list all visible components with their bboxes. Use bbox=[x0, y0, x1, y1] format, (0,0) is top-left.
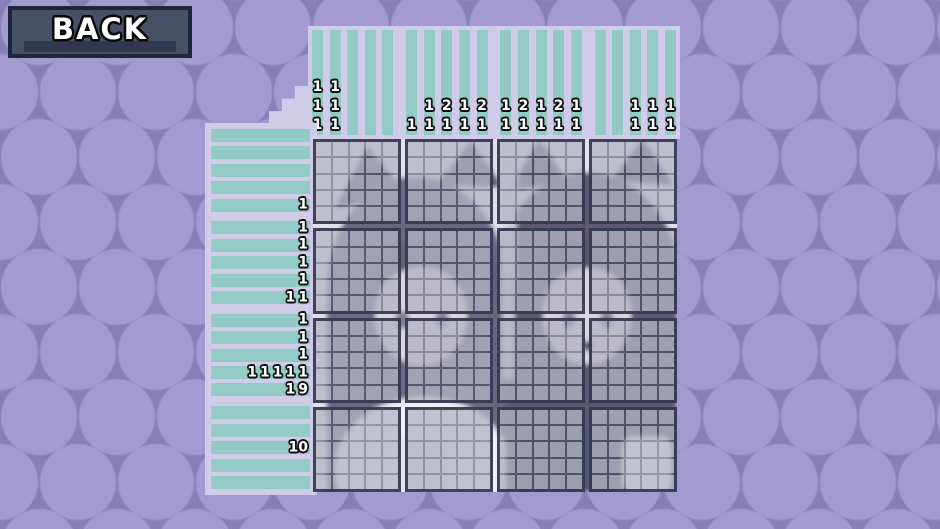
grid-cell[interactable] bbox=[609, 191, 624, 205]
grid-cell[interactable] bbox=[500, 410, 515, 424]
grid-cell[interactable] bbox=[659, 337, 674, 351]
grid-cell[interactable] bbox=[517, 280, 532, 294]
grid-cell[interactable] bbox=[333, 191, 348, 205]
grid-cell[interactable] bbox=[609, 369, 624, 383]
grid-cell[interactable] bbox=[567, 410, 582, 424]
grid-cell[interactable] bbox=[458, 475, 473, 489]
grid-cell[interactable] bbox=[475, 475, 490, 489]
grid-cell[interactable] bbox=[316, 337, 331, 351]
grid-cell[interactable] bbox=[350, 280, 365, 294]
grid-cell[interactable] bbox=[442, 337, 457, 351]
grid-cell[interactable] bbox=[550, 264, 565, 278]
grid-cell[interactable] bbox=[366, 264, 381, 278]
grid-cell[interactable] bbox=[534, 264, 549, 278]
grid-cell[interactable] bbox=[458, 142, 473, 156]
grid-cell[interactable] bbox=[642, 386, 657, 400]
grid-cell[interactable] bbox=[626, 475, 641, 489]
grid-cell[interactable] bbox=[534, 426, 549, 440]
grid-cell[interactable] bbox=[550, 248, 565, 262]
grid-cell[interactable] bbox=[567, 175, 582, 189]
grid-cell[interactable] bbox=[458, 264, 473, 278]
grid-cell[interactable] bbox=[442, 142, 457, 156]
grid-cell[interactable] bbox=[366, 142, 381, 156]
grid-cell[interactable] bbox=[383, 175, 398, 189]
grid-cell[interactable] bbox=[333, 207, 348, 221]
grid-cell[interactable] bbox=[609, 280, 624, 294]
grid-cell[interactable] bbox=[475, 386, 490, 400]
grid-cell[interactable] bbox=[366, 207, 381, 221]
grid-cell[interactable] bbox=[517, 207, 532, 221]
grid-cell[interactable] bbox=[517, 386, 532, 400]
back-button[interactable]: BACK bbox=[8, 6, 192, 58]
grid-cell[interactable] bbox=[350, 337, 365, 351]
grid-cell[interactable] bbox=[408, 191, 423, 205]
grid-cell[interactable] bbox=[458, 459, 473, 473]
grid-cell[interactable] bbox=[366, 337, 381, 351]
grid-cell[interactable] bbox=[425, 142, 440, 156]
grid-cell[interactable] bbox=[408, 353, 423, 367]
grid-cell[interactable] bbox=[442, 442, 457, 456]
grid-cell[interactable] bbox=[592, 175, 607, 189]
grid-cell[interactable] bbox=[442, 158, 457, 172]
grid-cell[interactable] bbox=[383, 280, 398, 294]
grid-cell[interactable] bbox=[442, 475, 457, 489]
grid-cell[interactable] bbox=[517, 410, 532, 424]
grid-cell[interactable] bbox=[383, 426, 398, 440]
grid-cell[interactable] bbox=[316, 191, 331, 205]
grid-cell[interactable] bbox=[567, 353, 582, 367]
grid-cell[interactable] bbox=[592, 475, 607, 489]
grid-cell[interactable] bbox=[659, 191, 674, 205]
grid-cell[interactable] bbox=[350, 475, 365, 489]
grid-cell[interactable] bbox=[408, 475, 423, 489]
grid-cell[interactable] bbox=[659, 142, 674, 156]
grid-cell[interactable] bbox=[567, 231, 582, 245]
grid-cell[interactable] bbox=[408, 369, 423, 383]
grid-cell[interactable] bbox=[333, 158, 348, 172]
grid-cell[interactable] bbox=[383, 459, 398, 473]
grid-cell[interactable] bbox=[333, 231, 348, 245]
grid-cell[interactable] bbox=[333, 264, 348, 278]
grid-cell[interactable] bbox=[592, 321, 607, 335]
grid-cell[interactable] bbox=[500, 231, 515, 245]
grid-cell[interactable] bbox=[550, 158, 565, 172]
grid-cell[interactable] bbox=[550, 442, 565, 456]
grid-cell[interactable] bbox=[500, 296, 515, 310]
grid-cell[interactable] bbox=[626, 175, 641, 189]
grid-cell[interactable] bbox=[383, 410, 398, 424]
grid-cell[interactable] bbox=[592, 459, 607, 473]
grid-cell[interactable] bbox=[659, 386, 674, 400]
grid-cell[interactable] bbox=[366, 280, 381, 294]
grid-cell[interactable] bbox=[659, 442, 674, 456]
grid-cell[interactable] bbox=[425, 191, 440, 205]
grid-cell[interactable] bbox=[458, 191, 473, 205]
grid-cell[interactable] bbox=[442, 248, 457, 262]
grid-cell[interactable] bbox=[442, 426, 457, 440]
grid-cell[interactable] bbox=[366, 426, 381, 440]
grid-cell[interactable] bbox=[425, 321, 440, 335]
grid-cell[interactable] bbox=[316, 207, 331, 221]
grid-cell[interactable] bbox=[366, 369, 381, 383]
grid-cell[interactable] bbox=[500, 264, 515, 278]
grid-cell[interactable] bbox=[475, 369, 490, 383]
grid-cell[interactable] bbox=[550, 459, 565, 473]
grid-cell[interactable] bbox=[475, 142, 490, 156]
grid-cell[interactable] bbox=[333, 369, 348, 383]
grid-cell[interactable] bbox=[442, 410, 457, 424]
grid-cell[interactable] bbox=[626, 264, 641, 278]
grid-cell[interactable] bbox=[458, 296, 473, 310]
grid-cell[interactable] bbox=[408, 175, 423, 189]
grid-cell[interactable] bbox=[609, 158, 624, 172]
grid-cell[interactable] bbox=[534, 158, 549, 172]
grid-cell[interactable] bbox=[609, 264, 624, 278]
grid-cell[interactable] bbox=[316, 369, 331, 383]
grid-cell[interactable] bbox=[592, 158, 607, 172]
grid-cell[interactable] bbox=[425, 426, 440, 440]
grid-cell[interactable] bbox=[500, 337, 515, 351]
grid-cell[interactable] bbox=[567, 426, 582, 440]
grid-cell[interactable] bbox=[626, 442, 641, 456]
grid-cell[interactable] bbox=[642, 337, 657, 351]
grid-cell[interactable] bbox=[316, 296, 331, 310]
grid-cell[interactable] bbox=[550, 475, 565, 489]
grid-cell[interactable] bbox=[642, 207, 657, 221]
grid-cell[interactable] bbox=[550, 142, 565, 156]
grid-cell[interactable] bbox=[534, 280, 549, 294]
grid-cell[interactable] bbox=[383, 207, 398, 221]
grid-cell[interactable] bbox=[425, 459, 440, 473]
grid-cell[interactable] bbox=[366, 475, 381, 489]
grid-cell[interactable] bbox=[350, 175, 365, 189]
grid-cell[interactable] bbox=[500, 475, 515, 489]
grid-cell[interactable] bbox=[316, 426, 331, 440]
grid-cell[interactable] bbox=[592, 410, 607, 424]
grid-cell[interactable] bbox=[475, 231, 490, 245]
grid-cell[interactable] bbox=[626, 158, 641, 172]
grid-cell[interactable] bbox=[567, 207, 582, 221]
grid-cell[interactable] bbox=[567, 191, 582, 205]
grid-cell[interactable] bbox=[609, 248, 624, 262]
grid-cell[interactable] bbox=[642, 280, 657, 294]
grid-cell[interactable] bbox=[550, 207, 565, 221]
grid-cell[interactable] bbox=[408, 231, 423, 245]
grid-cell[interactable] bbox=[408, 158, 423, 172]
grid-cell[interactable] bbox=[442, 321, 457, 335]
grid-cell[interactable] bbox=[425, 353, 440, 367]
grid-cell[interactable] bbox=[534, 459, 549, 473]
grid-cell[interactable] bbox=[366, 459, 381, 473]
grid-cell[interactable] bbox=[517, 337, 532, 351]
grid-cell[interactable] bbox=[534, 248, 549, 262]
grid-cell[interactable] bbox=[333, 175, 348, 189]
grid-cell[interactable] bbox=[659, 369, 674, 383]
grid-cell[interactable] bbox=[626, 280, 641, 294]
grid-cell[interactable] bbox=[425, 475, 440, 489]
grid-cell[interactable] bbox=[333, 142, 348, 156]
grid-cell[interactable] bbox=[350, 426, 365, 440]
grid-cell[interactable] bbox=[383, 442, 398, 456]
grid-cell[interactable] bbox=[517, 321, 532, 335]
grid-cell[interactable] bbox=[475, 158, 490, 172]
grid-cell[interactable] bbox=[425, 207, 440, 221]
grid-cell[interactable] bbox=[425, 296, 440, 310]
grid-cell[interactable] bbox=[534, 321, 549, 335]
grid-cell[interactable] bbox=[567, 475, 582, 489]
grid-cell[interactable] bbox=[442, 175, 457, 189]
grid-cell[interactable] bbox=[458, 158, 473, 172]
grid-cell[interactable] bbox=[626, 231, 641, 245]
grid-cell[interactable] bbox=[408, 442, 423, 456]
grid-cell[interactable] bbox=[550, 353, 565, 367]
grid-cell[interactable] bbox=[567, 386, 582, 400]
grid-cell[interactable] bbox=[609, 175, 624, 189]
grid-cell[interactable] bbox=[534, 231, 549, 245]
grid-cell[interactable] bbox=[626, 410, 641, 424]
grid-cell[interactable] bbox=[366, 248, 381, 262]
grid-cell[interactable] bbox=[366, 158, 381, 172]
grid-cell[interactable] bbox=[333, 426, 348, 440]
grid-cell[interactable] bbox=[316, 321, 331, 335]
grid-cell[interactable] bbox=[642, 442, 657, 456]
grid-cell[interactable] bbox=[316, 353, 331, 367]
grid-cell[interactable] bbox=[642, 231, 657, 245]
grid-cell[interactable] bbox=[500, 353, 515, 367]
grid-cell[interactable] bbox=[333, 337, 348, 351]
grid-cell[interactable] bbox=[567, 248, 582, 262]
grid-cell[interactable] bbox=[316, 442, 331, 456]
grid-cell[interactable] bbox=[592, 442, 607, 456]
grid-cell[interactable] bbox=[475, 207, 490, 221]
grid-cell[interactable] bbox=[350, 353, 365, 367]
grid-cell[interactable] bbox=[408, 410, 423, 424]
grid-cell[interactable] bbox=[592, 386, 607, 400]
grid-cell[interactable] bbox=[316, 475, 331, 489]
grid-cell[interactable] bbox=[475, 191, 490, 205]
grid-cell[interactable] bbox=[534, 386, 549, 400]
grid-cell[interactable] bbox=[642, 410, 657, 424]
grid-cell[interactable] bbox=[534, 142, 549, 156]
grid-cell[interactable] bbox=[534, 337, 549, 351]
grid-cell[interactable] bbox=[350, 207, 365, 221]
grid-cell[interactable] bbox=[609, 475, 624, 489]
grid-cell[interactable] bbox=[626, 459, 641, 473]
grid-cell[interactable] bbox=[659, 459, 674, 473]
grid-cell[interactable] bbox=[425, 337, 440, 351]
grid-cell[interactable] bbox=[626, 369, 641, 383]
grid-cell[interactable] bbox=[442, 231, 457, 245]
grid-cell[interactable] bbox=[442, 369, 457, 383]
grid-cell[interactable] bbox=[350, 321, 365, 335]
grid-cell[interactable] bbox=[316, 175, 331, 189]
grid-cell[interactable] bbox=[383, 142, 398, 156]
grid-cell[interactable] bbox=[458, 175, 473, 189]
grid-cell[interactable] bbox=[425, 410, 440, 424]
grid-cell[interactable] bbox=[366, 175, 381, 189]
grid-cell[interactable] bbox=[659, 410, 674, 424]
grid-cell[interactable] bbox=[408, 248, 423, 262]
grid-cell[interactable] bbox=[534, 175, 549, 189]
grid-cell[interactable] bbox=[550, 426, 565, 440]
grid-cell[interactable] bbox=[534, 369, 549, 383]
grid-cell[interactable] bbox=[550, 321, 565, 335]
grid-cell[interactable] bbox=[458, 386, 473, 400]
grid-cell[interactable] bbox=[333, 248, 348, 262]
grid-cell[interactable] bbox=[366, 386, 381, 400]
grid-cell[interactable] bbox=[383, 337, 398, 351]
grid-cell[interactable] bbox=[316, 158, 331, 172]
grid-cell[interactable] bbox=[609, 207, 624, 221]
grid-cell[interactable] bbox=[550, 369, 565, 383]
grid-cell[interactable] bbox=[609, 296, 624, 310]
grid-cell[interactable] bbox=[350, 264, 365, 278]
grid-cell[interactable] bbox=[408, 296, 423, 310]
grid-cell[interactable] bbox=[609, 142, 624, 156]
grid-cell[interactable] bbox=[442, 191, 457, 205]
grid-cell[interactable] bbox=[408, 426, 423, 440]
grid-cell[interactable] bbox=[425, 231, 440, 245]
grid-cell[interactable] bbox=[517, 158, 532, 172]
grid-cell[interactable] bbox=[475, 410, 490, 424]
grid-cell[interactable] bbox=[350, 410, 365, 424]
grid-cell[interactable] bbox=[383, 369, 398, 383]
grid-cell[interactable] bbox=[442, 386, 457, 400]
grid-cell[interactable] bbox=[425, 175, 440, 189]
grid-cell[interactable] bbox=[550, 175, 565, 189]
grid-cell[interactable] bbox=[659, 207, 674, 221]
grid-cell[interactable] bbox=[626, 191, 641, 205]
grid-cell[interactable] bbox=[567, 369, 582, 383]
grid-cell[interactable] bbox=[567, 280, 582, 294]
grid-cell[interactable] bbox=[333, 386, 348, 400]
grid-cell[interactable] bbox=[609, 459, 624, 473]
grid-cell[interactable] bbox=[550, 386, 565, 400]
grid-cell[interactable] bbox=[442, 459, 457, 473]
grid-cell[interactable] bbox=[458, 442, 473, 456]
grid-cell[interactable] bbox=[316, 248, 331, 262]
grid-cell[interactable] bbox=[350, 158, 365, 172]
grid-cell[interactable] bbox=[425, 386, 440, 400]
grid-cell[interactable] bbox=[408, 459, 423, 473]
grid-cell[interactable] bbox=[517, 175, 532, 189]
grid-cell[interactable] bbox=[534, 410, 549, 424]
grid-cell[interactable] bbox=[500, 207, 515, 221]
grid-cell[interactable] bbox=[534, 442, 549, 456]
grid-cell[interactable] bbox=[316, 142, 331, 156]
grid-cell[interactable] bbox=[458, 248, 473, 262]
grid-cell[interactable] bbox=[626, 426, 641, 440]
grid-cell[interactable] bbox=[642, 459, 657, 473]
grid-cell[interactable] bbox=[534, 191, 549, 205]
grid-cell[interactable] bbox=[458, 280, 473, 294]
grid-cell[interactable] bbox=[408, 337, 423, 351]
grid-cell[interactable] bbox=[659, 353, 674, 367]
grid-cell[interactable] bbox=[592, 337, 607, 351]
grid-cell[interactable] bbox=[475, 280, 490, 294]
grid-cell[interactable] bbox=[567, 264, 582, 278]
grid-cell[interactable] bbox=[550, 337, 565, 351]
grid-cell[interactable] bbox=[534, 207, 549, 221]
grid-cell[interactable] bbox=[642, 142, 657, 156]
grid-cell[interactable] bbox=[659, 296, 674, 310]
grid-cell[interactable] bbox=[659, 231, 674, 245]
grid-cell[interactable] bbox=[475, 175, 490, 189]
grid-cell[interactable] bbox=[659, 264, 674, 278]
grid-cell[interactable] bbox=[383, 264, 398, 278]
grid-cell[interactable] bbox=[350, 386, 365, 400]
grid-cell[interactable] bbox=[383, 231, 398, 245]
grid-cell[interactable] bbox=[592, 296, 607, 310]
grid-cell[interactable] bbox=[500, 248, 515, 262]
grid-cell[interactable] bbox=[383, 353, 398, 367]
grid-cell[interactable] bbox=[458, 207, 473, 221]
grid-cell[interactable] bbox=[517, 426, 532, 440]
grid-cell[interactable] bbox=[316, 459, 331, 473]
grid-cell[interactable] bbox=[425, 248, 440, 262]
grid-cell[interactable] bbox=[333, 459, 348, 473]
grid-cell[interactable] bbox=[500, 142, 515, 156]
grid-cell[interactable] bbox=[609, 337, 624, 351]
grid-cell[interactable] bbox=[642, 296, 657, 310]
grid-cell[interactable] bbox=[442, 207, 457, 221]
grid-cell[interactable] bbox=[550, 280, 565, 294]
grid-cell[interactable] bbox=[659, 175, 674, 189]
grid-cell[interactable] bbox=[475, 459, 490, 473]
grid-cell[interactable] bbox=[475, 264, 490, 278]
grid-cell[interactable] bbox=[408, 280, 423, 294]
grid-cell[interactable] bbox=[316, 410, 331, 424]
grid-cell[interactable] bbox=[442, 264, 457, 278]
grid-cell[interactable] bbox=[592, 191, 607, 205]
grid-cell[interactable] bbox=[442, 353, 457, 367]
grid-cell[interactable] bbox=[408, 142, 423, 156]
grid-cell[interactable] bbox=[350, 369, 365, 383]
grid-cell[interactable] bbox=[500, 321, 515, 335]
grid-cell[interactable] bbox=[609, 426, 624, 440]
grid-cell[interactable] bbox=[383, 386, 398, 400]
grid-cell[interactable] bbox=[517, 191, 532, 205]
grid-cell[interactable] bbox=[500, 280, 515, 294]
grid-cell[interactable] bbox=[316, 386, 331, 400]
grid-cell[interactable] bbox=[383, 191, 398, 205]
grid-cell[interactable] bbox=[517, 296, 532, 310]
grid-cell[interactable] bbox=[475, 296, 490, 310]
grid-cell[interactable] bbox=[609, 353, 624, 367]
grid-cell[interactable] bbox=[350, 248, 365, 262]
grid-cell[interactable] bbox=[500, 369, 515, 383]
grid-cell[interactable] bbox=[383, 158, 398, 172]
grid-cell[interactable] bbox=[458, 410, 473, 424]
grid-cell[interactable] bbox=[333, 410, 348, 424]
grid-cell[interactable] bbox=[458, 337, 473, 351]
grid-cell[interactable] bbox=[609, 321, 624, 335]
grid-cell[interactable] bbox=[383, 321, 398, 335]
grid-cell[interactable] bbox=[592, 248, 607, 262]
grid-cell[interactable] bbox=[316, 231, 331, 245]
grid-cell[interactable] bbox=[517, 475, 532, 489]
grid-cell[interactable] bbox=[333, 353, 348, 367]
grid-cell[interactable] bbox=[333, 442, 348, 456]
grid-cell[interactable] bbox=[425, 158, 440, 172]
grid-cell[interactable] bbox=[383, 296, 398, 310]
grid-cell[interactable] bbox=[659, 321, 674, 335]
grid-cell[interactable] bbox=[659, 280, 674, 294]
grid-cell[interactable] bbox=[567, 142, 582, 156]
grid-cell[interactable] bbox=[475, 353, 490, 367]
grid-cell[interactable] bbox=[366, 296, 381, 310]
grid-cell[interactable] bbox=[626, 248, 641, 262]
